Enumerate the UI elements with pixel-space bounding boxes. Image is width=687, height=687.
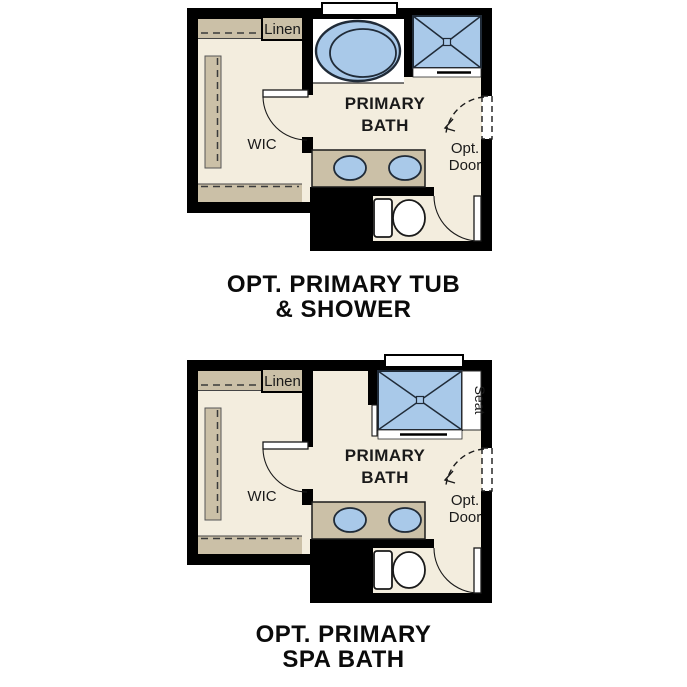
closet-shelf-bottom [198, 536, 302, 554]
closet-shelf-bottom [198, 184, 302, 202]
caption-line: & SHOWER [0, 297, 687, 322]
room-label-line1: PRIMARY [345, 94, 426, 113]
opt-door-label-line2: Door [449, 157, 482, 174]
caption-line: OPT. PRIMARY [0, 622, 687, 647]
room-label-line1: PRIMARY [345, 446, 426, 465]
linen-closet: Linen [262, 17, 303, 40]
caption-line: SPA BATH [0, 647, 687, 672]
caption-spa-bath: OPT. PRIMARY SPA BATH [0, 622, 687, 672]
floor-plan-tub-and-shower: Linen PRIMARY BATH WIC Opt. Door [185, 0, 495, 256]
shower-glass-return [372, 405, 377, 436]
room-label-line2: BATH [361, 468, 409, 487]
window-icon [385, 355, 463, 367]
seat-label: Seat [472, 386, 488, 415]
sink-icon [334, 508, 366, 532]
window-icon [322, 3, 397, 15]
opt-door-label-line1: Opt. [451, 140, 479, 157]
linen-label: Linen [264, 373, 301, 390]
floor-plan-spa-bath: Seat Linen [185, 352, 495, 608]
exterior-mask [185, 565, 310, 608]
toilet-icon [374, 199, 425, 237]
opt-door-label-line2: Door [449, 509, 482, 526]
shower-icon [413, 16, 481, 77]
closet-shelf-top [198, 19, 262, 39]
wic-label: WIC [247, 488, 276, 505]
vanity [312, 502, 425, 539]
caption-line: OPT. PRIMARY TUB [0, 272, 687, 297]
toilet-icon [374, 551, 425, 589]
closet-shelf-left [205, 408, 221, 520]
sink-icon [334, 156, 366, 180]
spa-shower-icon: Seat [372, 371, 488, 439]
linen-closet: Linen [262, 369, 303, 392]
wic-label: WIC [247, 136, 276, 153]
sink-icon [389, 156, 421, 180]
exterior-mask [185, 213, 310, 256]
vanity [312, 150, 425, 187]
room-label-line2: BATH [361, 116, 409, 135]
caption-tub-shower: OPT. PRIMARY TUB & SHOWER [0, 272, 687, 322]
sink-icon [389, 508, 421, 532]
closet-shelf-left [205, 56, 221, 168]
opt-door-label-line1: Opt. [451, 492, 479, 509]
closet-shelf-top [198, 371, 262, 391]
linen-label: Linen [264, 21, 301, 38]
